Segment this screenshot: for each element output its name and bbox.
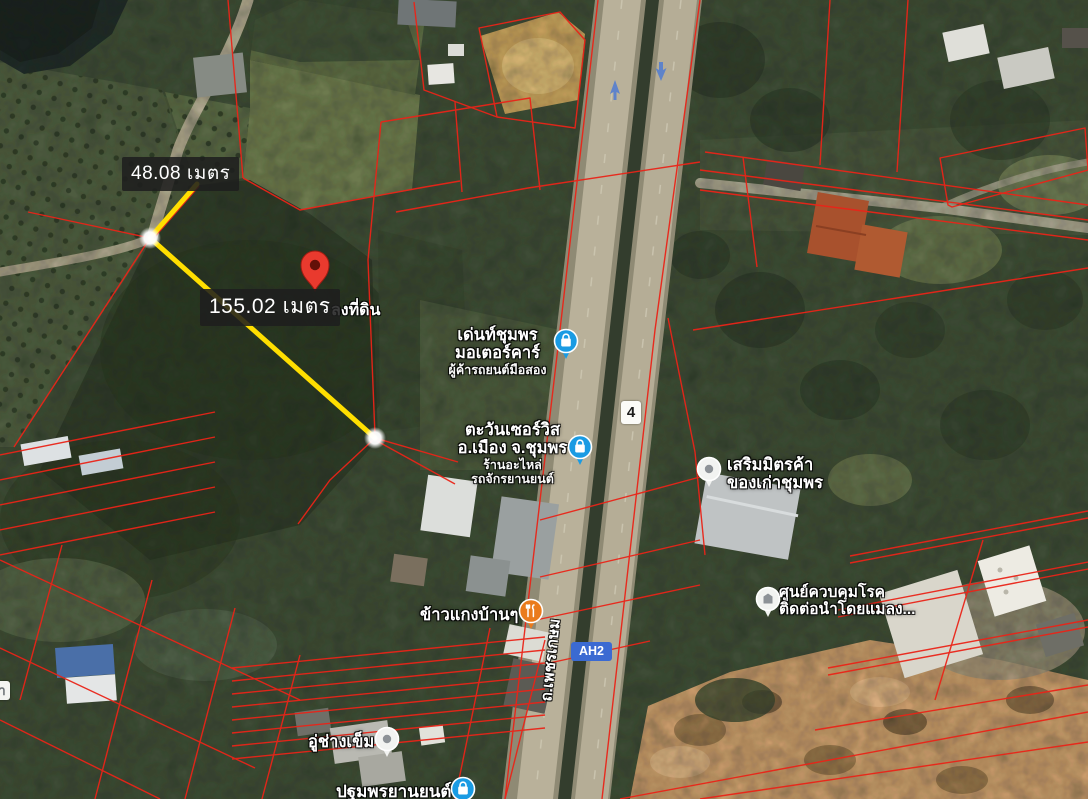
measurement-label-155m: 155.02 เมตร: [200, 289, 340, 326]
shopping-bag-icon[interactable]: [553, 328, 579, 360]
place-label-pathomporn-yanyon[interactable]: ปฐมพรยานยนต์: [336, 782, 451, 799]
satellite-map[interactable]: 48.08 เมตร 155.02 เมตร ลงที่ดิน เด่นท์ชุ…: [0, 0, 1088, 799]
route-4-shield: 4: [621, 401, 641, 424]
building-icon[interactable]: [755, 586, 781, 618]
shopping-bag-icon[interactable]: [567, 434, 593, 466]
place-label-tawan-service[interactable]: ตะวันเซอร์วิส อ.เมือง จ.ชุมพร ร้านอะไหล่…: [445, 421, 580, 486]
place-icon[interactable]: [374, 726, 400, 758]
ah2-highway-badge: AH2: [571, 642, 612, 661]
place-label-dent-chumphon[interactable]: เด่นท์ชุมพร มอเตอร์คาร์ ผู้ค้ารถยนต์มือส…: [430, 326, 565, 377]
vertex-dot: [139, 227, 161, 249]
measurement-label-48m: 48.08 เมตร: [122, 157, 239, 191]
vertex-dot: [364, 427, 386, 449]
place-icon[interactable]: [696, 456, 722, 488]
place-label-serm-mit-kha[interactable]: เสริมมิตรค้า ของเก่าชุมพร: [727, 456, 823, 493]
place-label-khao-kaeng-banban[interactable]: ข้าวแกงบ้านๆ: [420, 606, 518, 624]
shopping-bag-icon[interactable]: [450, 776, 476, 799]
restaurant-icon[interactable]: [518, 598, 544, 630]
clipped-edge-label: า: [0, 681, 10, 700]
place-label-u-chang-khem[interactable]: อู่ช่างเข็ม: [308, 733, 374, 751]
place-label-disease-control-center[interactable]: ศูนย์ควบคุมโรค ติดต่อนำโดยแมลง...: [779, 584, 915, 619]
